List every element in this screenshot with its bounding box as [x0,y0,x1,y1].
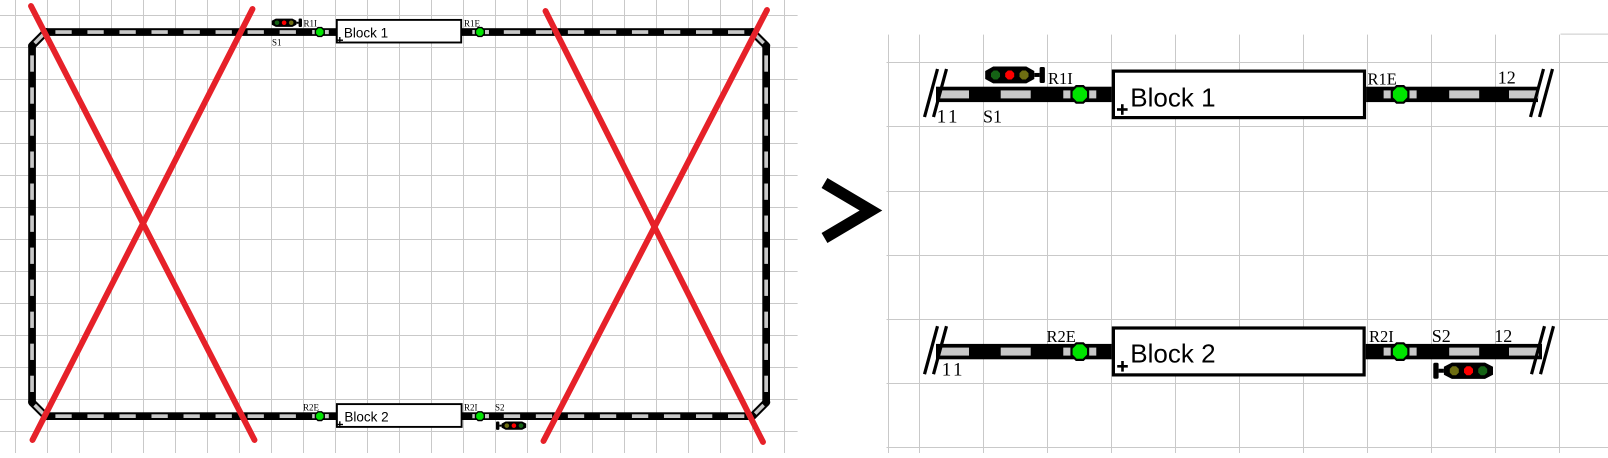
svg-text:1: 1 [948,106,958,127]
svg-text:Block 2: Block 2 [1130,338,1215,368]
svg-text:S2: S2 [495,403,505,413]
svg-text:S2: S2 [1432,326,1451,346]
svg-text:R2I: R2I [464,403,478,413]
svg-text:Block 2: Block 2 [344,410,388,425]
svg-text:R2I: R2I [1369,327,1394,346]
svg-text:12: 12 [1494,326,1512,346]
svg-text:1: 1 [942,360,952,381]
svg-text:Block 1: Block 1 [344,25,388,40]
svg-text:R1E: R1E [464,18,481,28]
svg-text:R1I: R1I [1048,69,1073,88]
svg-text:R2E: R2E [1047,327,1076,346]
svg-text:R2E: R2E [303,403,320,413]
svg-text:1: 1 [953,360,963,381]
svg-text:R1I: R1I [304,18,318,28]
svg-text:Block 1: Block 1 [1130,82,1215,112]
svg-text:12: 12 [1498,68,1516,88]
svg-text:R1E: R1E [1368,70,1397,89]
svg-text:1: 1 [937,106,947,127]
svg-text:S1: S1 [272,38,282,48]
svg-text:S1: S1 [983,106,1002,126]
